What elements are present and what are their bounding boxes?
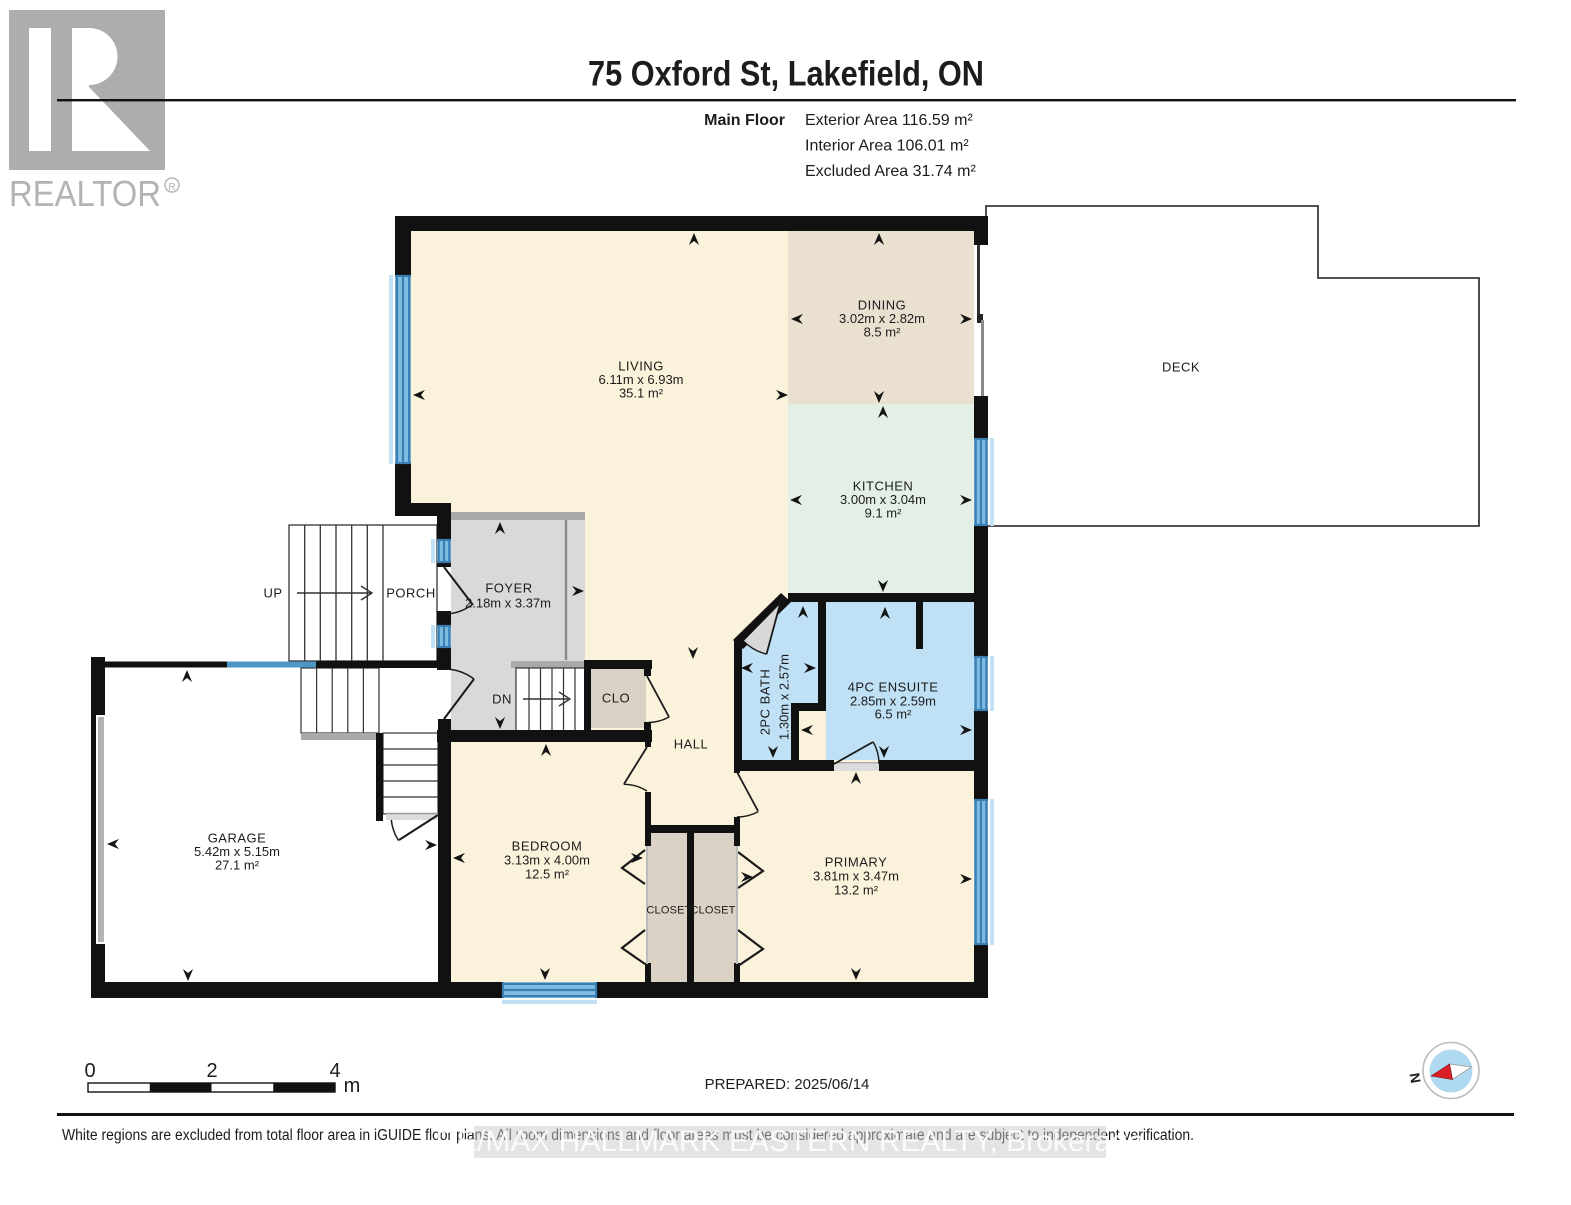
svg-text:DECK: DECK (1162, 360, 1200, 375)
svg-text:PREPARED: 2025/06/14: PREPARED: 2025/06/14 (705, 1076, 870, 1093)
svg-text:FOYER: FOYER (485, 581, 532, 596)
svg-text:BEDROOM: BEDROOM (512, 839, 583, 854)
svg-text:2: 2 (206, 1060, 217, 1082)
svg-text:35.1 m²: 35.1 m² (619, 386, 664, 401)
svg-text:HALL: HALL (674, 737, 709, 752)
svg-text:REALTOR: REALTOR (9, 173, 161, 214)
svg-text:9.1 m²: 9.1 m² (865, 506, 903, 521)
svg-text:13.2 m²: 13.2 m² (834, 883, 879, 898)
svg-text:1.30m x 2.57m: 1.30m x 2.57m (777, 654, 792, 740)
svg-text:PRIMARY: PRIMARY (825, 855, 888, 870)
svg-text:R: R (168, 182, 175, 193)
svg-text:75 Oxford St, Lakefield, ON: 75 Oxford St, Lakefield, ON (588, 55, 984, 94)
svg-text:27.1 m²: 27.1 m² (215, 858, 260, 873)
svg-text:0: 0 (84, 1060, 95, 1082)
svg-text:m: m (344, 1075, 361, 1097)
svg-text:4PC ENSUITE: 4PC ENSUITE (848, 680, 939, 695)
svg-text:Exterior Area 116.59 m²: Exterior Area 116.59 m² (805, 112, 973, 129)
svg-text:3.81m x 3.47m: 3.81m x 3.47m (813, 869, 899, 884)
svg-text:CLO: CLO (602, 691, 630, 706)
svg-text:12.5 m²: 12.5 m² (525, 867, 570, 882)
svg-text:CLOSET: CLOSET (646, 905, 691, 917)
svg-text:DN: DN (492, 692, 512, 707)
svg-text:Main Floor: Main Floor (704, 112, 785, 129)
svg-text:UP: UP (263, 586, 282, 601)
svg-text:RE/MAX HALLMARK EASTERN REALTY: RE/MAX HALLMARK EASTERN REALTY, Brokerag… (435, 1125, 1144, 1158)
svg-text:8.5 m²: 8.5 m² (864, 325, 902, 340)
svg-text:PORCH: PORCH (386, 586, 435, 601)
svg-text:2PC BATH: 2PC BATH (758, 669, 773, 736)
svg-text:6.5 m²: 6.5 m² (875, 707, 913, 722)
svg-text:2.18m x 3.37m: 2.18m x 3.37m (465, 596, 551, 611)
svg-text:Excluded Area 31.74 m²: Excluded Area 31.74 m² (805, 163, 976, 180)
svg-text:3.13m x 4.00m: 3.13m x 4.00m (504, 853, 590, 868)
svg-text:4: 4 (329, 1060, 340, 1082)
svg-text:Interior Area 106.01 m²: Interior Area 106.01 m² (805, 138, 969, 155)
svg-text:CLOSET: CLOSET (690, 905, 735, 917)
